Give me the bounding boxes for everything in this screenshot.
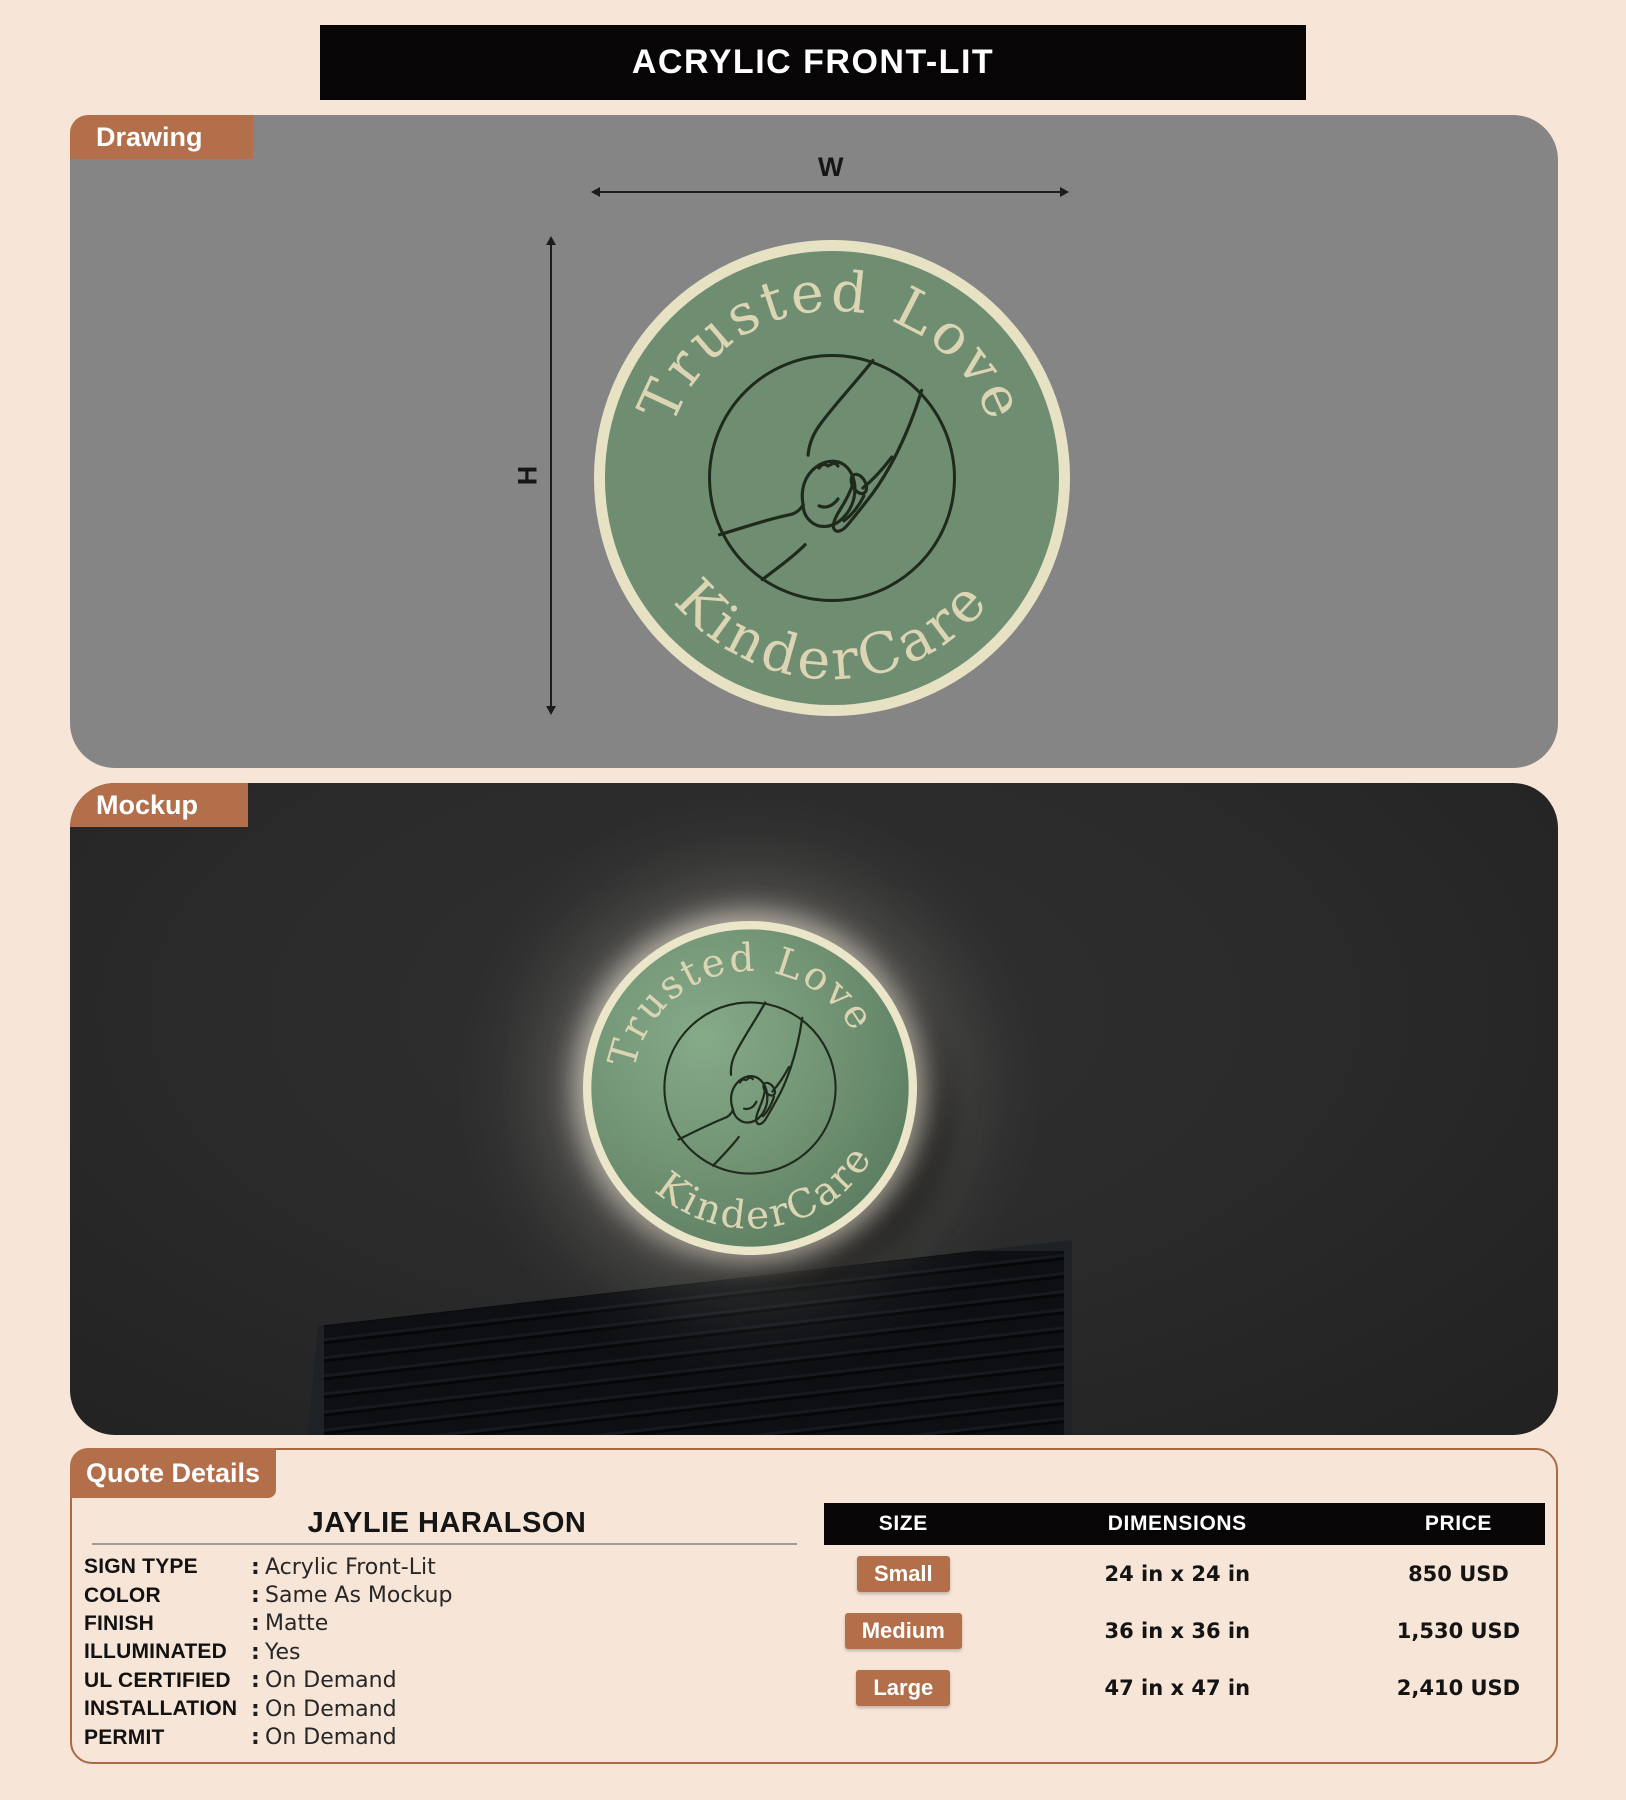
- field-label: PERMIT: [84, 1726, 251, 1750]
- dimensions-value: 36 in x 36 in: [983, 1619, 1372, 1643]
- field-separator: :: [251, 1640, 265, 1665]
- sign-mockup: Trusted Love KinderCare: [559, 897, 941, 1279]
- field-label: COLOR: [84, 1584, 251, 1608]
- quote-details-panel: Quote Details JAYLIE HARALSON SIGN TYPE …: [70, 1448, 1558, 1764]
- table-row: Small 24 in x 24 in 850 USD: [824, 1545, 1545, 1602]
- table-row: Medium 36 in x 36 in 1,530 USD: [824, 1602, 1545, 1659]
- column-header-price: PRICE: [1372, 1512, 1545, 1536]
- field-separator: :: [251, 1611, 265, 1636]
- quote-field-row: PERMIT : On Demand: [84, 1723, 724, 1751]
- field-label: FINISH: [84, 1612, 251, 1636]
- column-header-size: SIZE: [824, 1512, 983, 1536]
- quote-field-row: INSTALLATION : On Demand: [84, 1695, 724, 1723]
- customer-name: JAYLIE HARALSON: [92, 1507, 802, 1540]
- table-row: Large 47 in x 47 in 2,410 USD: [824, 1659, 1545, 1716]
- field-value: On Demand: [265, 1697, 397, 1722]
- page-title: ACRYLIC FRONT-LIT: [632, 43, 994, 82]
- customer-name-divider: [92, 1543, 797, 1545]
- size-option-large[interactable]: Large: [856, 1670, 950, 1706]
- field-value: Yes: [265, 1640, 301, 1665]
- price-value: 850 USD: [1372, 1562, 1545, 1586]
- dimensions-value: 47 in x 47 in: [983, 1676, 1372, 1700]
- field-separator: :: [251, 1725, 265, 1750]
- dimensions-value: 24 in x 24 in: [983, 1562, 1372, 1586]
- field-label: UL CERTIFIED: [84, 1669, 251, 1693]
- quote-field-row: UL CERTIFIED : On Demand: [84, 1667, 724, 1695]
- quote-fields: SIGN TYPE : Acrylic Front-Lit COLOR : Sa…: [84, 1553, 724, 1752]
- field-value: On Demand: [265, 1668, 397, 1693]
- height-dimension-label: H: [512, 466, 543, 486]
- price-table-header: SIZE DIMENSIONS PRICE: [824, 1503, 1545, 1545]
- mockup-tab: Mockup: [70, 783, 248, 827]
- quote-field-row: ILLUMINATED : Yes: [84, 1638, 724, 1666]
- sign-logo-drawing: Trusted Love KinderCare: [593, 239, 1071, 717]
- mockup-tab-label: Mockup: [96, 790, 198, 821]
- height-arrow-line: [550, 238, 552, 713]
- quote-field-row: SIGN TYPE : Acrylic Front-Lit: [84, 1553, 724, 1581]
- field-separator: :: [251, 1583, 265, 1608]
- field-value: Same As Mockup: [265, 1583, 452, 1608]
- field-value: Acrylic Front-Lit: [265, 1555, 436, 1580]
- drawing-tab: Drawing: [70, 115, 253, 159]
- width-arrow-line: [593, 191, 1067, 193]
- sign-mockup-svg: Trusted Love KinderCare: [559, 897, 941, 1279]
- field-separator: :: [251, 1668, 265, 1693]
- field-label: ILLUMINATED: [84, 1640, 251, 1664]
- size-option-medium[interactable]: Medium: [845, 1613, 962, 1649]
- drawing-tab-label: Drawing: [96, 122, 203, 153]
- field-separator: :: [251, 1555, 265, 1580]
- column-header-dimensions: DIMENSIONS: [983, 1512, 1372, 1536]
- price-value: 2,410 USD: [1372, 1676, 1545, 1700]
- quote-details-tab-label: Quote Details: [86, 1458, 260, 1489]
- drawing-panel: Drawing W H Trusted Love KinderCare: [70, 115, 1558, 768]
- field-separator: :: [251, 1697, 265, 1722]
- mockup-panel: Mockup Trusted Lo: [70, 783, 1558, 1435]
- price-value: 1,530 USD: [1372, 1619, 1545, 1643]
- width-dimension-label: W: [818, 152, 843, 183]
- title-banner: ACRYLIC FRONT-LIT: [320, 25, 1306, 100]
- price-table: SIZE DIMENSIONS PRICE Small 24 in x 24 i…: [824, 1503, 1545, 1716]
- field-value: On Demand: [265, 1725, 397, 1750]
- quote-field-row: COLOR : Same As Mockup: [84, 1581, 724, 1609]
- field-value: Matte: [265, 1611, 328, 1636]
- field-label: SIGN TYPE: [84, 1555, 251, 1579]
- size-option-small[interactable]: Small: [857, 1556, 950, 1592]
- sign-logo-drawing-svg: Trusted Love KinderCare: [593, 239, 1071, 717]
- quote-details-tab: Quote Details: [70, 1448, 276, 1498]
- quote-field-row: FINISH : Matte: [84, 1610, 724, 1638]
- field-label: INSTALLATION: [84, 1697, 251, 1721]
